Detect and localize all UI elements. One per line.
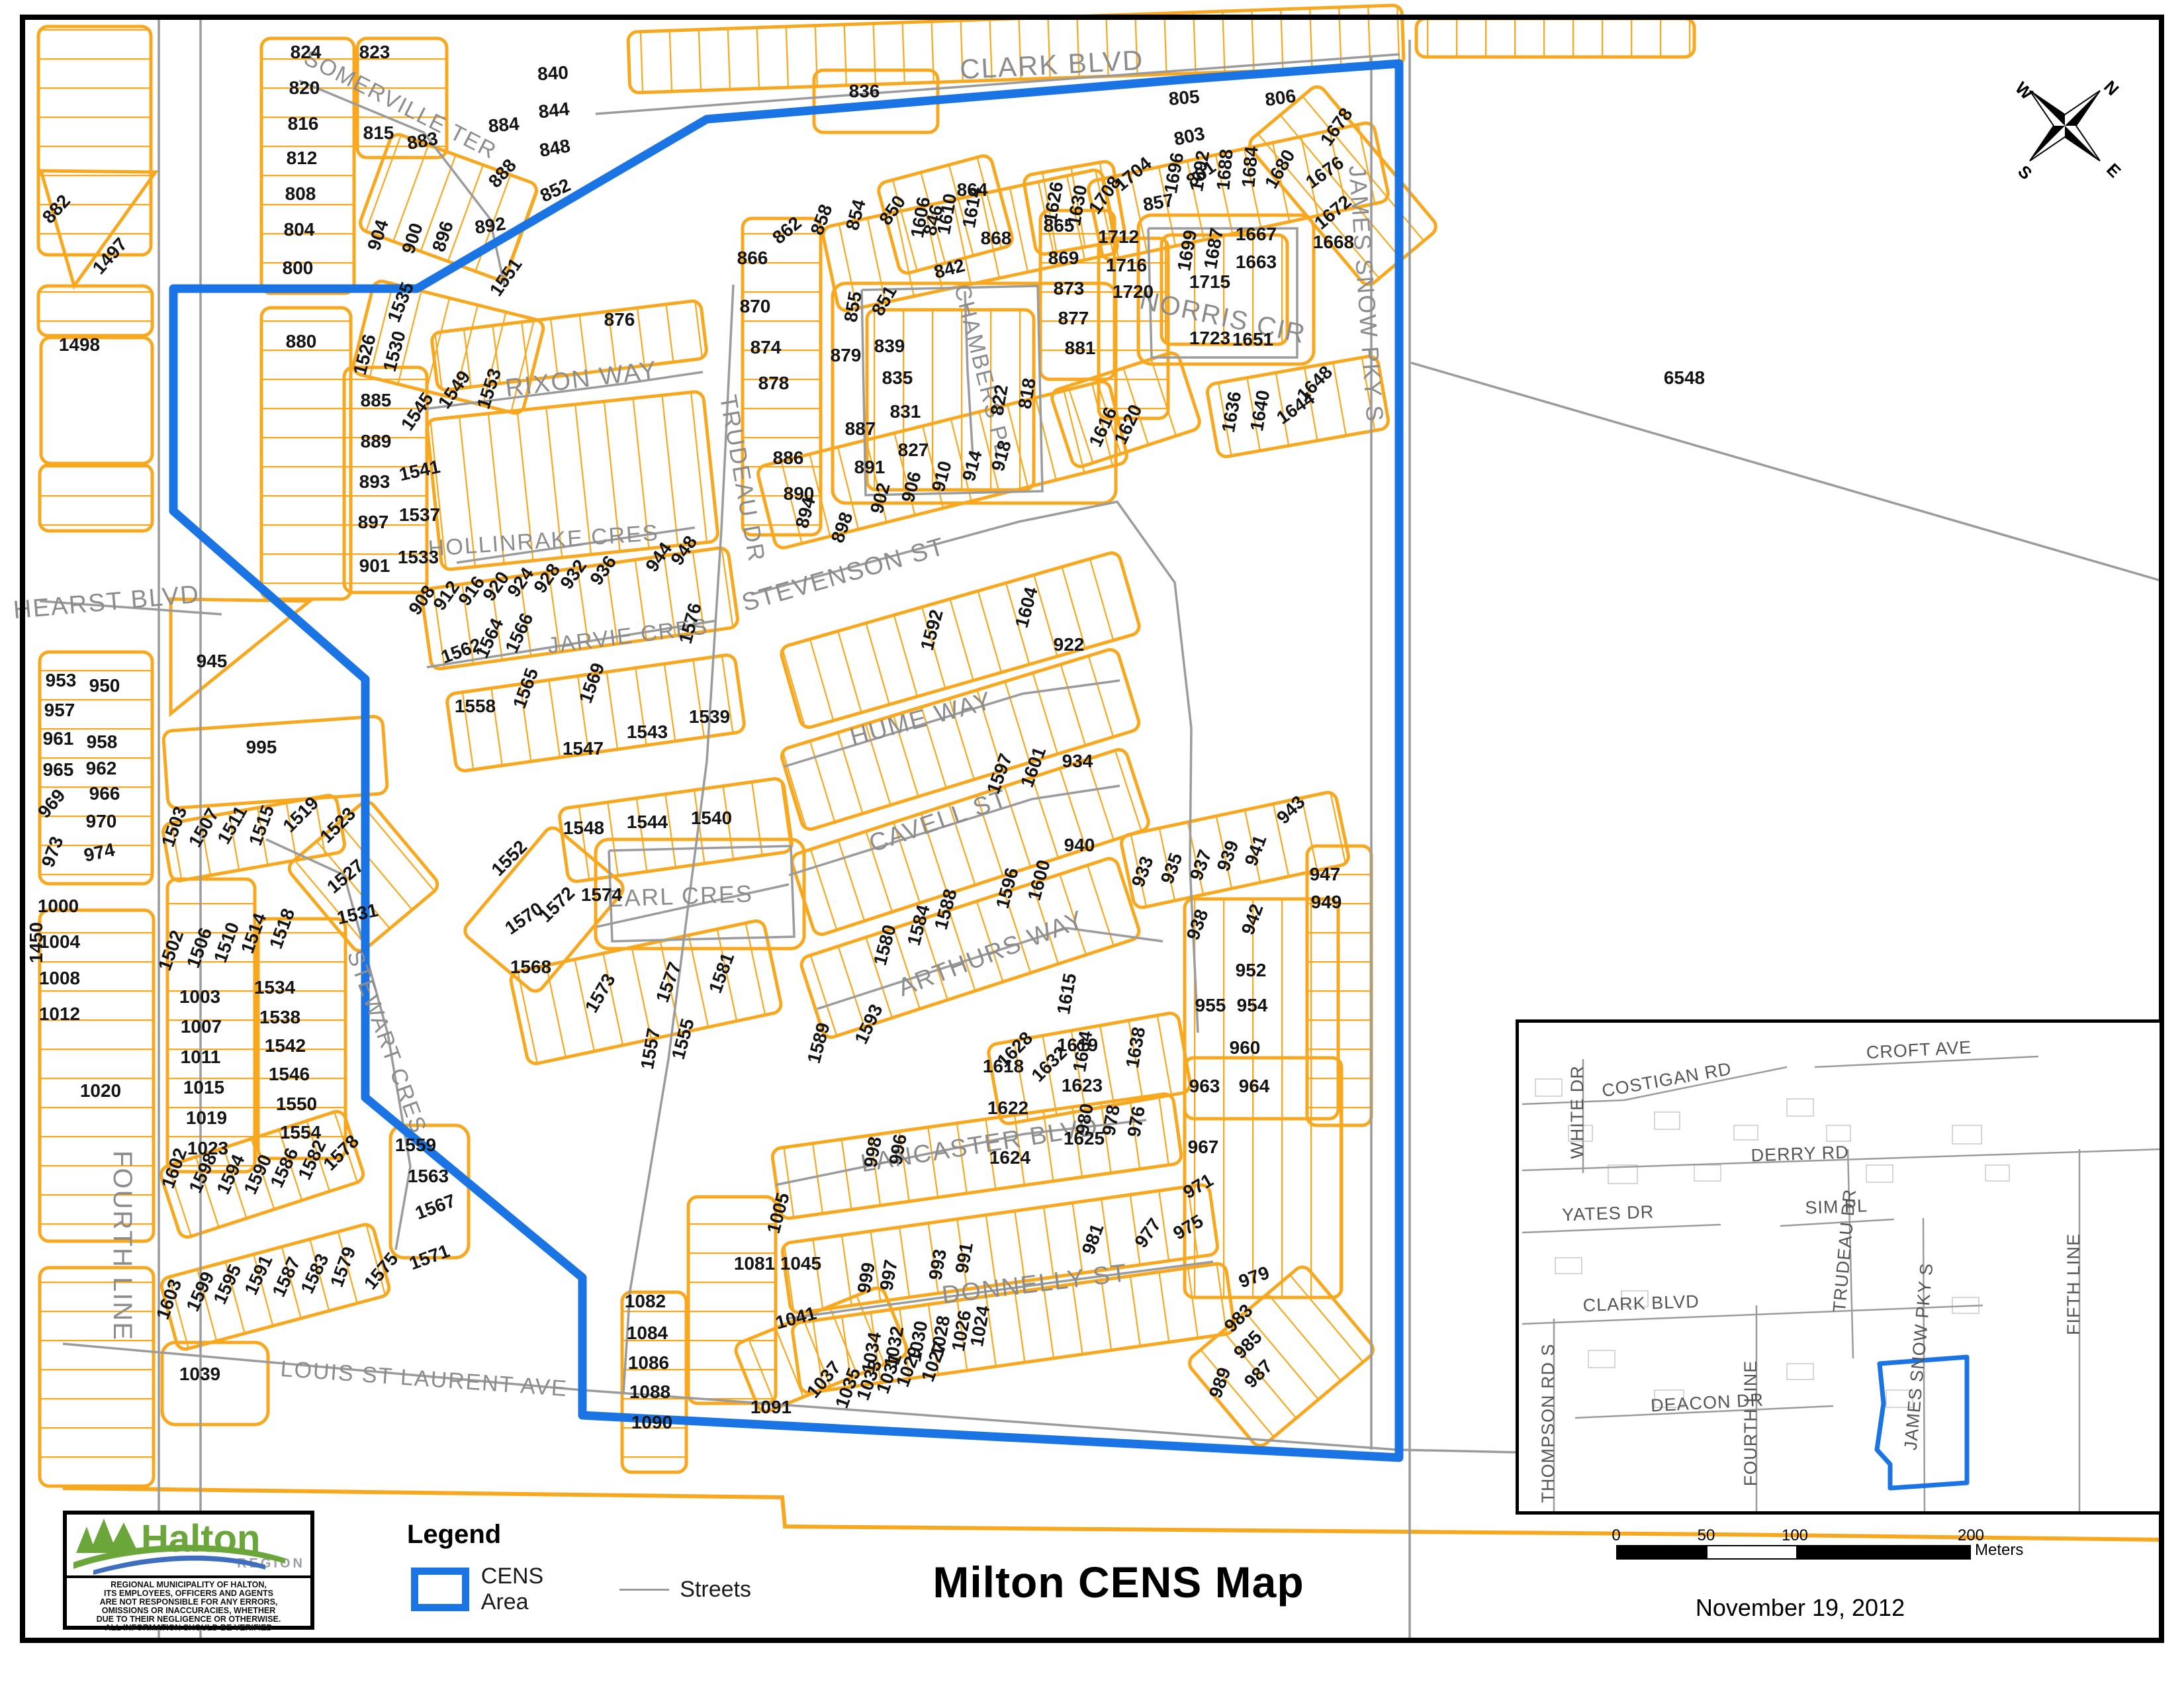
inset-content: CROFT AVECOSTIGAN RDDERRY RDYATES DRSIM … bbox=[1522, 1037, 2160, 1511]
inset-street-label: COSTIGAN RD bbox=[1600, 1058, 1733, 1101]
logo-disclaimer: REGIONAL MUNICIPALITY OF HALTON,ITS EMPL… bbox=[67, 1581, 310, 1632]
inset-block bbox=[1787, 1099, 1813, 1116]
inset-block bbox=[1866, 1165, 1893, 1182]
inset-street-label: FIFTH LINE bbox=[2064, 1233, 2083, 1335]
inset-block bbox=[1787, 1364, 1813, 1380]
disclaimer-line: ALL INFORMATION SHOULD BE VERIFIED bbox=[67, 1624, 310, 1632]
legend-title: Legend bbox=[407, 1520, 751, 1550]
inset-street-label: DERRY RD bbox=[1751, 1142, 1849, 1165]
compass-rose: N E S W bbox=[2009, 63, 2128, 189]
inset-street-label: FOURTH LINE bbox=[1741, 1360, 1760, 1487]
inset-street-label: THOMPSON RD S bbox=[1538, 1343, 1558, 1503]
cens-area-swatch bbox=[411, 1568, 469, 1611]
streets-line-swatch bbox=[619, 1589, 669, 1591]
inset-street-label: CLARK BLVD bbox=[1582, 1291, 1700, 1315]
compass-e-label: E bbox=[2103, 160, 2124, 181]
inset-block bbox=[1827, 1125, 1850, 1141]
scale-label-100: 100 bbox=[1782, 1526, 1808, 1545]
scale-bar-graphic bbox=[1616, 1545, 1971, 1560]
inset-block bbox=[1985, 1165, 2009, 1181]
scale-label-0: 0 bbox=[1612, 1526, 1620, 1545]
legend: Legend CENS Area Streets bbox=[407, 1520, 751, 1619]
inset-block bbox=[1588, 1350, 1615, 1368]
inset-street-label: CROFT AVE bbox=[1866, 1037, 1972, 1062]
compass-w-label: W bbox=[2011, 78, 2037, 104]
cens-area-label: CENS Area bbox=[481, 1564, 589, 1615]
inset-block bbox=[1535, 1079, 1562, 1096]
compass-n-label: N bbox=[2100, 77, 2122, 99]
map-title: Milton CENS Map bbox=[847, 1557, 1390, 1607]
halton-region-logo-box: Halton REGION REGIONAL MUNICIPALITY OF H… bbox=[63, 1511, 314, 1630]
inset-street-label: YATES DR bbox=[1562, 1202, 1655, 1225]
inset-street-label: JAMES SNOW PKY S bbox=[1901, 1262, 1937, 1451]
inset-block bbox=[1952, 1125, 1981, 1144]
inset-block bbox=[1734, 1125, 1758, 1140]
milton-cens-map-page: CLARK BLVDSOMERVILLE TERRIXON WAYHOLLINR… bbox=[0, 0, 2184, 1688]
scale-label-50: 50 bbox=[1698, 1526, 1715, 1545]
inset-canvas: CROFT AVECOSTIGAN RDDERRY RDYATES DRSIM … bbox=[1519, 1023, 2160, 1511]
inset-street-line bbox=[1522, 1225, 1721, 1233]
inset-overview-map: CROFT AVECOSTIGAN RDDERRY RDYATES DRSIM … bbox=[1516, 1019, 2163, 1515]
scale-unit-label: Meters bbox=[1975, 1541, 2023, 1560]
inset-block bbox=[1655, 1112, 1680, 1129]
map-date: November 19, 2012 bbox=[1641, 1594, 1959, 1622]
streets-label: Streets bbox=[680, 1577, 751, 1603]
inset-street-label: WHITE DR bbox=[1567, 1065, 1587, 1158]
inset-block bbox=[1555, 1258, 1582, 1274]
halton-logo: Halton REGION bbox=[67, 1515, 310, 1578]
compass-s-label: S bbox=[2014, 162, 2036, 183]
scale-bar: 0 50 100 200 Meters bbox=[1616, 1526, 2079, 1560]
inset-block bbox=[1694, 1165, 1721, 1181]
